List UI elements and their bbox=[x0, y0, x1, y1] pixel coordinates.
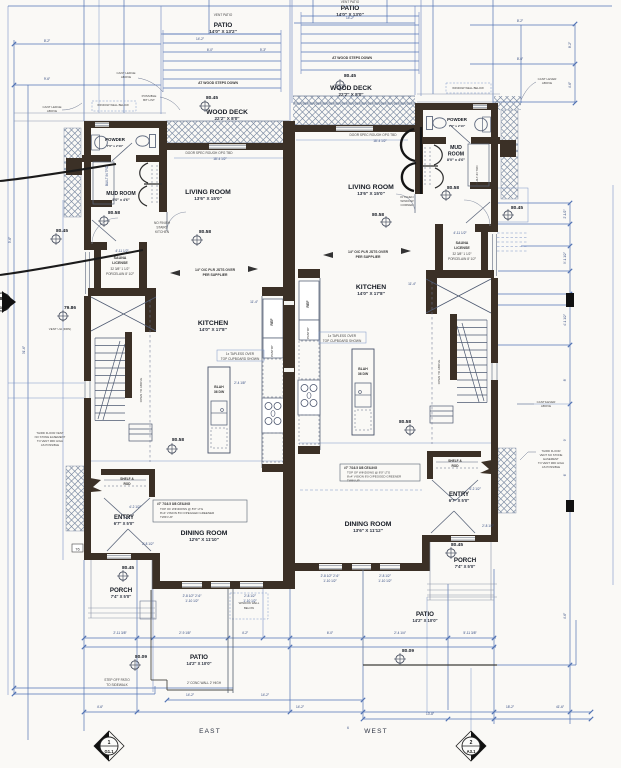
svg-text:PER SUPPLIER: PER SUPPLIER bbox=[203, 273, 228, 277]
svg-text:6′-0″: 6′-0″ bbox=[207, 48, 214, 52]
svg-text:VENT UH (DRN): VENT UH (DRN) bbox=[49, 327, 71, 331]
svg-text:80.58: 80.58 bbox=[199, 229, 211, 235]
svg-text:2′-8 1/2″ 2′-6″: 2′-8 1/2″ 2′-6″ bbox=[183, 594, 203, 598]
svg-text:ABOVE: ABOVE bbox=[121, 75, 131, 79]
svg-text:7′6″ x 2′10″: 7′6″ x 2′10″ bbox=[107, 144, 124, 148]
svg-text:80.09: 80.09 bbox=[135, 654, 147, 660]
svg-text:KITCHEN: KITCHEN bbox=[198, 320, 228, 327]
svg-text:AT WOOD STEPS DOWN: AT WOOD STEPS DOWN bbox=[332, 56, 372, 60]
svg-text:BIT LIST: BIT LIST bbox=[143, 98, 155, 102]
svg-text:ABOVE: ABOVE bbox=[542, 81, 552, 85]
svg-text:13′6″ X 15′0″: 13′6″ X 15′0″ bbox=[194, 196, 222, 201]
svg-text:13′-8″: 13′-8″ bbox=[426, 712, 435, 716]
svg-text:TO SIDEWALK: TO SIDEWALK bbox=[106, 683, 128, 687]
svg-text:KITCHEN: KITCHEN bbox=[155, 230, 170, 234]
svg-text:SHELF &: SHELF & bbox=[448, 459, 462, 463]
svg-text:VENT PATIO: VENT PATIO bbox=[214, 13, 233, 17]
svg-text:EAST: EAST bbox=[199, 728, 221, 735]
svg-text:2′-4 1/4″: 2′-4 1/4″ bbox=[394, 631, 407, 635]
svg-text:ABOVE: ABOVE bbox=[541, 404, 551, 408]
svg-text:SAUNA: SAUNA bbox=[456, 241, 469, 245]
svg-text:80.45: 80.45 bbox=[344, 73, 356, 79]
svg-text:PORCH: PORCH bbox=[454, 557, 477, 564]
svg-text:8′-2″: 8′-2″ bbox=[517, 19, 524, 23]
svg-text:TOP CUPBOARD SHOWN: TOP CUPBOARD SHOWN bbox=[221, 357, 260, 361]
svg-text:12′6″ X 11′10″: 12′6″ X 11′10″ bbox=[189, 537, 220, 542]
svg-text:KITCHEN: KITCHEN bbox=[356, 284, 386, 291]
svg-text:LIVING ROOM: LIVING ROOM bbox=[185, 189, 231, 196]
svg-text:AS POSSIBLE: AS POSSIBLE bbox=[542, 465, 560, 469]
svg-text:STAIRS: STAIRS bbox=[156, 226, 167, 230]
svg-text:2′-1/2″: 2′-1/2″ bbox=[563, 209, 567, 219]
svg-text:REF: REF bbox=[270, 318, 274, 326]
svg-text:TOP CUPBOARD SHOWN: TOP CUPBOARD SHOWN bbox=[323, 339, 362, 343]
svg-text:MUD ROOM: MUD ROOM bbox=[106, 191, 135, 197]
svg-text:4′-11 1/2″: 4′-11 1/2″ bbox=[115, 249, 129, 253]
svg-text:36 DW: 36 DW bbox=[358, 372, 369, 376]
svg-text:8′0″ x 4′6″: 8′0″ x 4′6″ bbox=[447, 158, 465, 162]
svg-text:A3.0: A3.0 bbox=[0, 306, 5, 310]
svg-text:31′-6″: 31′-6″ bbox=[22, 345, 26, 354]
svg-text:BUILT IN TRD: BUILT IN TRD bbox=[105, 165, 109, 186]
svg-text:2′ CONC WALL 2′ HIGH: 2′ CONC WALL 2′ HIGH bbox=[187, 681, 222, 685]
svg-text:80.58: 80.58 bbox=[172, 437, 184, 443]
svg-text:1x TAPLESS OVER: 1x TAPLESS OVER bbox=[328, 334, 357, 338]
svg-text:6: 6 bbox=[347, 726, 349, 730]
svg-text:1′-10 1/2″: 1′-10 1/2″ bbox=[378, 579, 392, 583]
svg-text:PANTRY: PANTRY bbox=[306, 327, 310, 339]
svg-text:2′-9 1/8″: 2′-9 1/8″ bbox=[179, 631, 192, 635]
svg-text:LIVING ROOM: LIVING ROOM bbox=[348, 184, 394, 191]
svg-text:14″ O/C PLR JSTS OVER: 14″ O/C PLR JSTS OVER bbox=[348, 250, 389, 254]
svg-text:1′-10 1/2″: 1′-10 1/2″ bbox=[323, 579, 337, 583]
svg-text:13′6″ X 11′12″: 13′6″ X 11′12″ bbox=[353, 528, 384, 533]
svg-text:OPEN TO ABOVE: OPEN TO ABOVE bbox=[139, 378, 143, 402]
svg-text:80.45: 80.45 bbox=[451, 542, 463, 548]
svg-text:7′6″ x 2′10″: 7′6″ x 2′10″ bbox=[449, 124, 466, 128]
svg-text:14′0″ X 17′8″: 14′0″ X 17′8″ bbox=[199, 327, 227, 332]
svg-text:WINDOW WELL BELOW: WINDOW WELL BELOW bbox=[452, 86, 484, 90]
svg-text:8′-2″: 8′-2″ bbox=[568, 41, 572, 48]
svg-text:80.58: 80.58 bbox=[399, 419, 411, 425]
svg-text:32 3/8″ 1 1/2″: 32 3/8″ 1 1/2″ bbox=[452, 252, 472, 256]
svg-text:PATIO: PATIO bbox=[190, 654, 208, 661]
svg-text:#7′ 7/16.5 8/8 CEILING: #7′ 7/16.5 8/8 CEILING bbox=[157, 502, 191, 506]
svg-text:A3.1: A3.1 bbox=[467, 749, 477, 754]
svg-text:ROD: ROD bbox=[451, 464, 459, 468]
svg-text:LICENSE: LICENSE bbox=[454, 246, 470, 250]
svg-text:8′: 8′ bbox=[563, 378, 567, 381]
svg-text:80.45: 80.45 bbox=[206, 95, 218, 101]
svg-text:5′-6″: 5′-6″ bbox=[8, 236, 12, 243]
svg-text:4′-11 1/2″: 4′-11 1/2″ bbox=[453, 231, 467, 235]
svg-text:11′-4″: 11′-4″ bbox=[408, 282, 417, 286]
svg-text:DOOR SPEC ROUGH OPG TBD: DOOR SPEC ROUGH OPG TBD bbox=[185, 151, 233, 155]
svg-text:14′0″ X 17′8″: 14′0″ X 17′8″ bbox=[357, 291, 385, 296]
svg-text:1′-10 1/2″: 1′-10 1/2″ bbox=[243, 599, 257, 603]
svg-text:WINDOW WELL BELOW: WINDOW WELL BELOW bbox=[97, 103, 129, 107]
svg-text:ROD: ROD bbox=[123, 482, 131, 486]
svg-text:9′: 9′ bbox=[563, 438, 567, 441]
svg-text:14′2″ X 10′0″: 14′2″ X 10′0″ bbox=[412, 618, 437, 623]
svg-text:DINING ROOM: DINING ROOM bbox=[345, 521, 392, 528]
svg-text:4′-6″: 4′-6″ bbox=[568, 81, 572, 88]
svg-text:4′-2 1/2″: 4′-2 1/2″ bbox=[129, 505, 142, 509]
svg-text:6′7″ X 5′0″: 6′7″ X 5′0″ bbox=[449, 498, 469, 503]
svg-text:18′-2″: 18′-2″ bbox=[506, 705, 515, 709]
svg-text:14′-2″: 14′-2″ bbox=[346, 16, 355, 20]
svg-text:22′2″ X 8′0″: 22′2″ X 8′0″ bbox=[339, 92, 365, 97]
svg-text:5′-11 3/8″: 5′-11 3/8″ bbox=[463, 631, 477, 635]
svg-text:80.45: 80.45 bbox=[122, 565, 134, 571]
svg-text:2′-8 1/2″ 2′-6″: 2′-8 1/2″ 2′-6″ bbox=[321, 574, 341, 578]
svg-text:2′-8 1/2″: 2′-8 1/2″ bbox=[244, 594, 257, 598]
svg-text:32 3/8″ 1 1/2″: 32 3/8″ 1 1/2″ bbox=[110, 267, 130, 271]
svg-text:STEP OFF PATIO: STEP OFF PATIO bbox=[104, 678, 130, 682]
svg-text:80.09: 80.09 bbox=[402, 648, 414, 654]
svg-text:14′-2″: 14′-2″ bbox=[261, 693, 270, 697]
svg-text:9′-6″: 9′-6″ bbox=[44, 77, 51, 81]
svg-text:TWIN UP: TWIN UP bbox=[347, 479, 360, 483]
svg-text:4′-1 1/2″: 4′-1 1/2″ bbox=[563, 313, 567, 326]
svg-text:80.45: 80.45 bbox=[56, 228, 68, 234]
svg-text:SHELF &: SHELF & bbox=[120, 477, 134, 481]
svg-text:4′-6″: 4′-6″ bbox=[97, 705, 104, 709]
svg-text:80.58: 80.58 bbox=[447, 185, 459, 191]
svg-text:2′-8 1/2″: 2′-8 1/2″ bbox=[379, 574, 392, 578]
svg-text:VENT PATIO: VENT PATIO bbox=[341, 0, 360, 4]
svg-text:PORCELAIN 8′ 1/2″: PORCELAIN 8′ 1/2″ bbox=[106, 272, 135, 276]
svg-text:41′-6″: 41′-6″ bbox=[556, 705, 565, 709]
svg-text:1x TAPLESS OVER: 1x TAPLESS OVER bbox=[226, 352, 255, 356]
svg-text:80.58: 80.58 bbox=[372, 212, 384, 218]
svg-text:80.58: 80.58 bbox=[108, 210, 120, 216]
svg-text:13′6″ X 15′0″: 13′6″ X 15′0″ bbox=[357, 191, 385, 196]
svg-text:REF: REF bbox=[306, 300, 310, 308]
svg-text:18′-4 1/2″: 18′-4 1/2″ bbox=[213, 157, 227, 161]
svg-text:8′0″ x 4′6″: 8′0″ x 4′6″ bbox=[112, 198, 129, 202]
svg-text:DOOR SPEC ROUGH OPG TBD: DOOR SPEC ROUGH OPG TBD bbox=[349, 133, 397, 137]
svg-text:14′-2″: 14′-2″ bbox=[186, 693, 195, 697]
svg-text:WEST: WEST bbox=[364, 728, 388, 735]
svg-text:5′-3″: 5′-3″ bbox=[260, 48, 267, 52]
svg-text:2′-8 1/2″: 2′-8 1/2″ bbox=[142, 542, 155, 546]
svg-text:MUD: MUD bbox=[450, 145, 462, 151]
svg-text:G1.1: G1.1 bbox=[104, 749, 114, 754]
svg-text:PATIO: PATIO bbox=[214, 22, 233, 29]
svg-text:PORCELAIN 8′ 1/2″: PORCELAIN 8′ 1/2″ bbox=[448, 257, 477, 261]
svg-text:36 DW: 36 DW bbox=[214, 390, 225, 394]
svg-text:OPEN TO ABOVE: OPEN TO ABOVE bbox=[437, 360, 441, 384]
svg-text:8′-2″: 8′-2″ bbox=[44, 39, 51, 43]
svg-text:2′-11 3/8″: 2′-11 3/8″ bbox=[113, 631, 127, 635]
svg-text:ABOVE: ABOVE bbox=[47, 109, 57, 113]
svg-text:7′4″ X 5′0″: 7′4″ X 5′0″ bbox=[455, 564, 475, 569]
svg-text:14′-2″: 14′-2″ bbox=[196, 37, 205, 41]
svg-text:22′2″ X 8′0″: 22′2″ X 8′0″ bbox=[215, 116, 241, 121]
svg-text:6′7″ X 5′0″: 6′7″ X 5′0″ bbox=[114, 521, 134, 526]
svg-text:AT WOOD STEPS DOWN: AT WOOD STEPS DOWN bbox=[198, 81, 238, 85]
svg-text:2: 2 bbox=[470, 740, 473, 746]
svg-text:ROOM: ROOM bbox=[448, 152, 464, 158]
svg-text:80.45: 80.45 bbox=[511, 205, 523, 211]
svg-text:14′-2″: 14′-2″ bbox=[296, 705, 305, 709]
svg-text:9′-1 1/2″: 9′-1 1/2″ bbox=[563, 251, 567, 264]
svg-text:2′-4 1/8″: 2′-4 1/8″ bbox=[234, 381, 247, 385]
svg-text:7′4″ X 5′0″: 7′4″ X 5′0″ bbox=[111, 594, 131, 599]
svg-text:8′-6″: 8′-6″ bbox=[517, 57, 524, 61]
svg-text:PATIO: PATIO bbox=[416, 611, 434, 618]
svg-text:WOOD DECK: WOOD DECK bbox=[330, 85, 372, 92]
svg-text:11′-4″: 11′-4″ bbox=[250, 300, 259, 304]
svg-text:4′-6″: 4′-6″ bbox=[563, 612, 567, 619]
svg-text:PANTRY: PANTRY bbox=[270, 345, 274, 357]
svg-text:POWDER: POWDER bbox=[105, 137, 126, 142]
svg-text:BLAH: BLAH bbox=[358, 367, 368, 371]
svg-text:TWIN UP: TWIN UP bbox=[160, 515, 173, 519]
svg-text:BLAH: BLAH bbox=[214, 385, 224, 389]
svg-text:14″ O/C PLR JSTS OVER: 14″ O/C PLR JSTS OVER bbox=[195, 268, 236, 272]
svg-text:SAUNA: SAUNA bbox=[114, 256, 127, 260]
svg-text:4′-2 1/2″: 4′-2 1/2″ bbox=[469, 487, 482, 491]
svg-text:AS POSSIBLE: AS POSSIBLE bbox=[41, 443, 59, 447]
svg-text:PER SUPPLIER: PER SUPPLIER bbox=[356, 255, 381, 259]
svg-text:WOOD DECK: WOOD DECK bbox=[206, 109, 248, 116]
svg-text:BELOW: BELOW bbox=[244, 606, 254, 610]
svg-text:NO FINISH: NO FINISH bbox=[154, 221, 171, 225]
svg-text:#7′ 7/16.5 8/8 CEILING: #7′ 7/16.5 8/8 CEILING bbox=[344, 466, 378, 470]
svg-text:76: 76 bbox=[75, 547, 80, 552]
svg-text:LICENSE: LICENSE bbox=[112, 261, 128, 265]
svg-text:PATIO: PATIO bbox=[341, 5, 360, 12]
svg-text:DINING ROOM: DINING ROOM bbox=[181, 530, 228, 537]
svg-text:1: 1 bbox=[108, 740, 111, 746]
svg-text:1′-10 1/2″: 1′-10 1/2″ bbox=[185, 599, 199, 603]
svg-text:6′: 6′ bbox=[563, 473, 567, 476]
svg-text:CORNER: CORNER bbox=[400, 203, 414, 207]
svg-text:POWDER: POWDER bbox=[447, 117, 468, 122]
svg-text:14′2″ X 10′0″: 14′2″ X 10′0″ bbox=[186, 661, 211, 666]
svg-text:4′-2″: 4′-2″ bbox=[242, 631, 249, 635]
svg-text:14′0″ X 13′2″: 14′0″ X 13′2″ bbox=[209, 29, 237, 34]
svg-text:PORCH: PORCH bbox=[110, 587, 133, 594]
svg-text:18′-4 1/2″: 18′-4 1/2″ bbox=[373, 139, 387, 143]
svg-text:6′-0″: 6′-0″ bbox=[327, 631, 334, 635]
svg-text:BUILT-IN TRD: BUILT-IN TRD bbox=[475, 165, 479, 185]
svg-text:2′-8 1/2″: 2′-8 1/2″ bbox=[482, 524, 495, 528]
svg-text:79.86: 79.86 bbox=[64, 305, 76, 311]
